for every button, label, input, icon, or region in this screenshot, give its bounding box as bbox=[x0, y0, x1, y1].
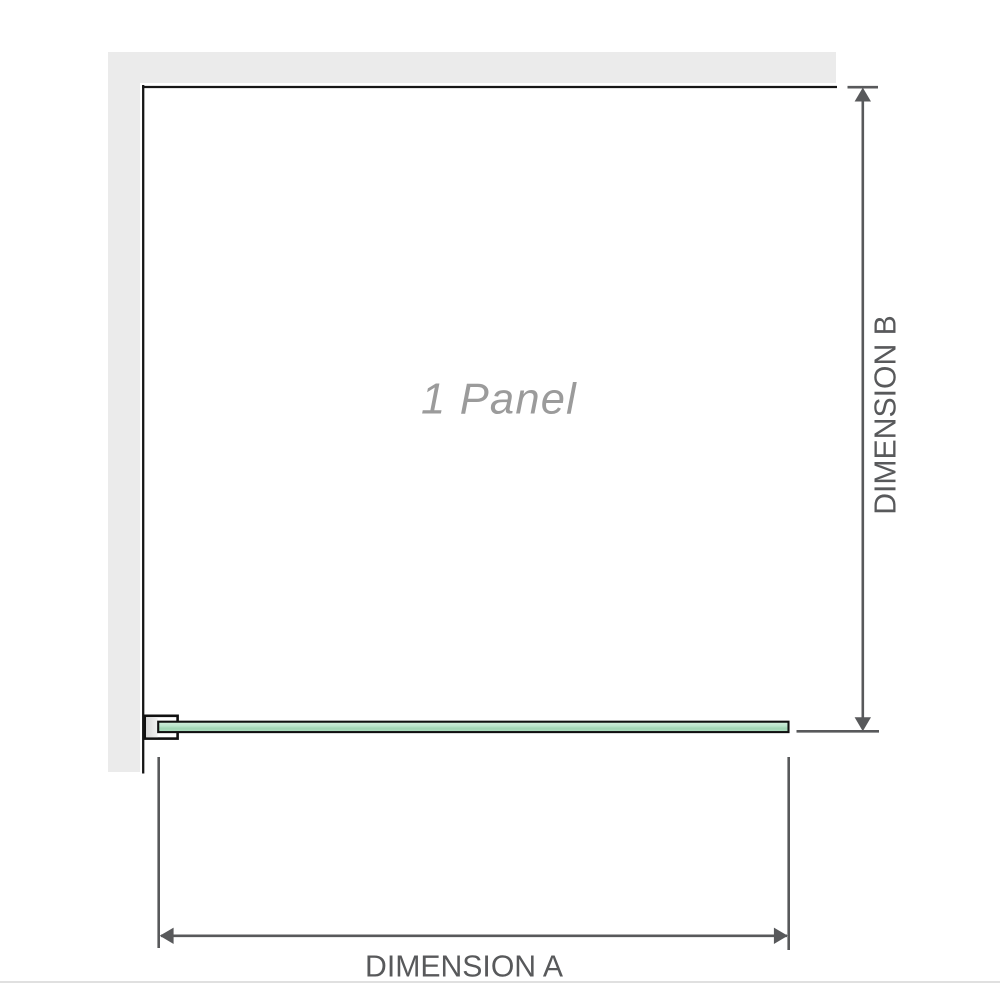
svg-text:1 Panel: 1 Panel bbox=[421, 376, 577, 424]
svg-text:DIMENSION B: DIMENSION B bbox=[870, 315, 903, 515]
svg-text:DIMENSION A: DIMENSION A bbox=[365, 951, 564, 984]
